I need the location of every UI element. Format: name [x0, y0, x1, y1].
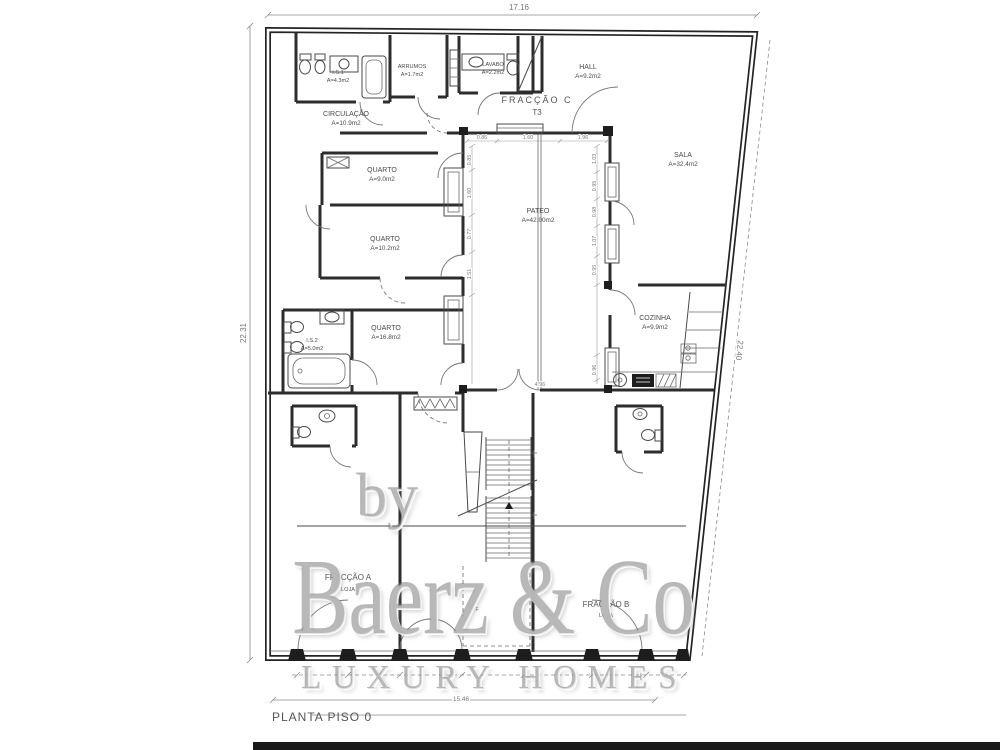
pateo-dim: 1.07	[592, 236, 598, 247]
pateo-dim: 1.03	[592, 154, 598, 165]
dim-top: 17.16	[509, 3, 530, 12]
pateo-dim: 1.51	[467, 269, 473, 280]
room-label-arrumos-area: A=1.7m2	[401, 72, 424, 78]
room-label-lavabo-name: LAVABO	[482, 62, 504, 68]
pateo-dim: 0.77	[467, 229, 473, 240]
stair-area-label: ATF	[469, 607, 478, 613]
fraction-c-type: T3	[532, 108, 542, 117]
room-label-hall-area: A=9.2m2	[575, 73, 601, 80]
room-label-is2-area: A=5.0m2	[301, 346, 324, 352]
pateo-dimension-chains: 0.86 1.60 1.96 0.85 1.60 0.77 1.51 1.03 …	[465, 135, 609, 388]
fraction-c-label: FRACÇÃO C	[501, 95, 572, 105]
pateo-dim: 0.95	[592, 181, 598, 192]
fraction-a-label: FRACÇÃO A	[325, 573, 372, 582]
room-label-quarto3-area: A=16.8m2	[371, 334, 401, 341]
fraction-b-type: LOJA	[599, 613, 613, 619]
room-label-cozinha-name: COZINHA	[639, 315, 671, 322]
room-label-sala-area: A=32.4m2	[668, 161, 698, 168]
room-label-pateo-name: PATEO	[527, 208, 550, 215]
pateo-dim: 1.96	[578, 135, 589, 141]
room-label-quarto1-name: QUARTO	[367, 167, 397, 174]
pateo-dim: 0.85	[467, 155, 473, 166]
fraction-a-type: LOJA	[341, 587, 355, 593]
bottom-bar	[253, 742, 1000, 750]
pateo-dim: 4.96	[535, 382, 546, 388]
room-label-circulacao-name: CIRCULAÇÃO	[323, 109, 369, 118]
pateo-dim: 0.96	[592, 365, 598, 376]
room-label-cozinha-area: A=9.9m2	[642, 324, 668, 331]
drawing-title: PLANTA PISO 0	[272, 710, 372, 724]
room-label-quarto2-area: A=10.2m2	[370, 245, 400, 252]
dim-left: 22.31	[239, 322, 248, 343]
room-label-hall-name: HALL	[579, 64, 597, 71]
pateo-dim: 1.60	[467, 188, 473, 199]
floorplan-page: 17.16 22.31 22.40 15.46	[0, 0, 1000, 750]
room-label-lavabo-area: A=2.2m2	[482, 70, 505, 76]
floor-plan-drawing: 17.16 22.31 22.40 15.46	[0, 0, 1000, 750]
room-label-circulacao-area: A=10.9m2	[331, 120, 361, 127]
room-label-is2-name: I.S.2	[306, 338, 318, 344]
room-labels: I.S.1 A=4.3m2 ARRUMOS A=1.7m2 LAVABO A=2…	[301, 62, 698, 619]
pateo-dim: 0.86	[477, 135, 488, 141]
room-label-pateo-area: A=42.00m2	[522, 217, 555, 224]
pateo-dim: 0.95	[592, 265, 598, 276]
room-label-quarto1-area: A=9.0m2	[369, 176, 395, 183]
room-label-quarto2-name: QUARTO	[370, 236, 400, 243]
pateo-dim: 0.98	[592, 207, 598, 218]
room-label-quarto3-name: QUARTO	[371, 325, 401, 332]
room-label-sala-name: SALA	[674, 152, 692, 159]
dim-bottom: 15.46	[453, 696, 470, 703]
fraction-b-label: FRACÇÃO B	[583, 600, 630, 609]
room-label-is1-name: I.S.1	[332, 70, 344, 76]
room-label-arrumos-name: ARRUMOS	[398, 64, 427, 70]
dim-right: 22.40	[734, 340, 745, 361]
pateo-dim: 1.60	[523, 135, 534, 141]
room-label-is1-area: A=4.3m2	[327, 78, 350, 84]
